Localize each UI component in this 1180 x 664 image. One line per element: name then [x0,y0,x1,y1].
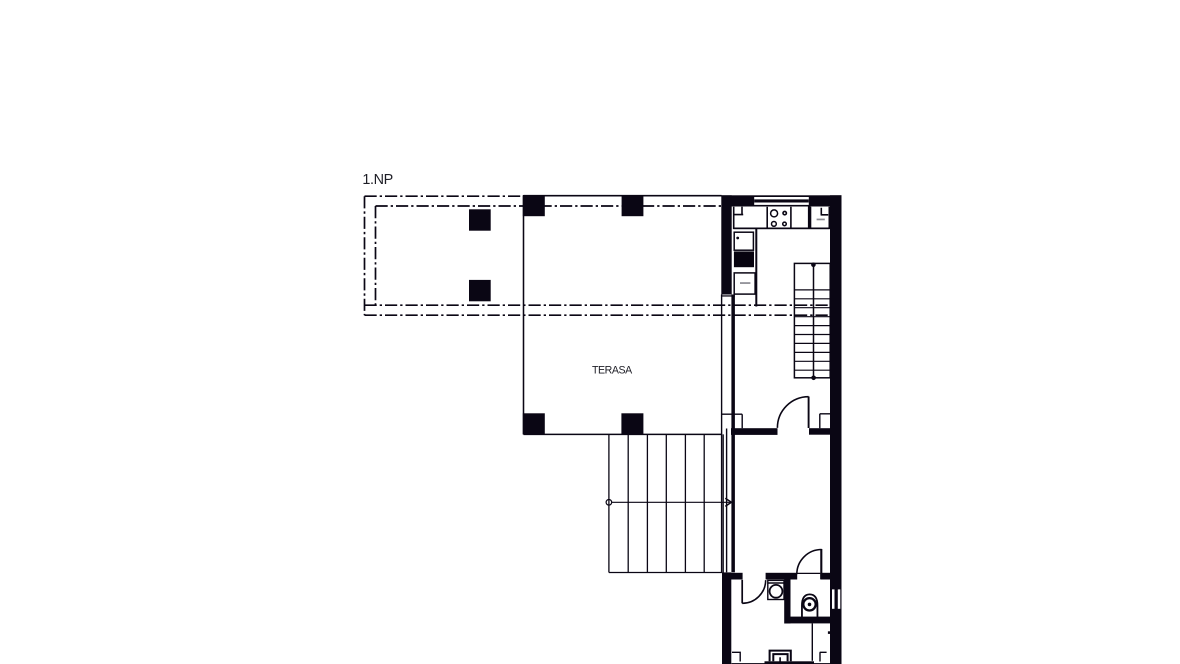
svg-text:1.NP: 1.NP [362,172,392,188]
svg-text:TERASA: TERASA [592,364,633,376]
